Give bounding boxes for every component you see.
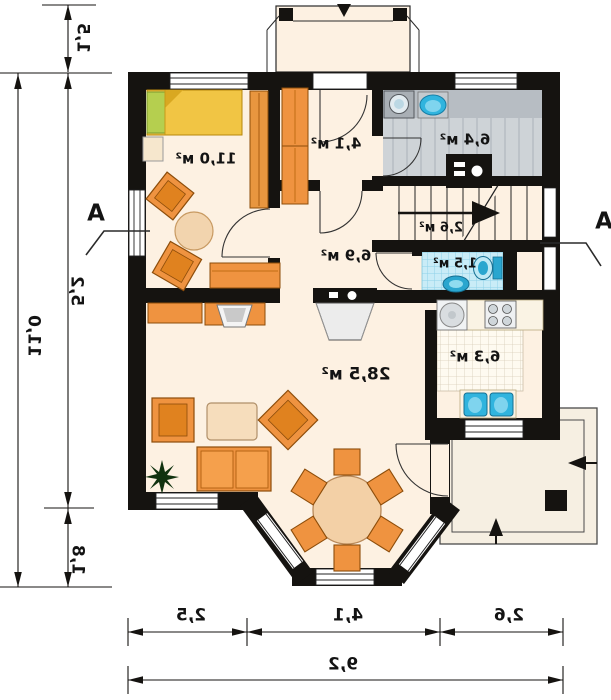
kitchen-bottom-window <box>465 420 523 438</box>
desk <box>210 263 280 288</box>
room-label-hall: 6,9 м² <box>321 249 372 264</box>
dim-porch-depth: 1,5 <box>74 23 91 53</box>
washing-machine <box>384 91 414 118</box>
porch-column-right <box>393 8 407 21</box>
kitchen-sink <box>460 390 516 418</box>
section-marker-right: A <box>595 211 611 234</box>
tv-stand <box>148 303 265 327</box>
room-label-living-room: 28,5 м² <box>321 367 390 384</box>
dim-left-upper: 5,2 <box>68 276 85 306</box>
floor-plan-page: 11,0 м² 4,1 м² 6,4 м² 2,6 м² 1,5 м² 6,9 … <box>0 0 611 700</box>
fridge <box>437 300 467 330</box>
bedroom-table <box>175 212 213 250</box>
dim-bottom-total: 9,2 <box>328 657 358 674</box>
toilet <box>474 257 503 280</box>
dim-bottom-middle: 4,1 <box>333 608 363 625</box>
bedroom-top-window <box>170 73 248 89</box>
room-label-wc: 1,5 м² <box>433 258 477 271</box>
dim-bottom-left: 2,5 <box>176 608 206 625</box>
sofa <box>197 447 271 491</box>
porch-column-left <box>279 8 293 21</box>
room-label-stairs: 2,6 м² <box>419 222 463 235</box>
furnace <box>446 154 492 188</box>
room-label-kitchen: 6,3 м² <box>450 350 501 365</box>
dim-bottom-right: 2,6 <box>494 608 524 625</box>
stove <box>485 301 516 328</box>
bedroom-wardrobe <box>250 91 268 208</box>
room-label-bedroom: 11,0 м² <box>175 152 236 167</box>
bed <box>147 90 242 135</box>
living-left-window <box>156 493 218 509</box>
hall-wardrobe <box>282 88 308 204</box>
entry-porch <box>267 4 419 72</box>
duct-shaft-upper <box>544 188 556 237</box>
bathroom-sink <box>418 92 448 118</box>
nightstand <box>143 137 163 161</box>
bedroom-left-window <box>129 190 145 256</box>
terrace-column <box>545 490 567 511</box>
duct-shaft-lower <box>544 247 556 290</box>
section-marker-left: A <box>87 203 105 226</box>
plant <box>145 460 179 494</box>
wc-sink <box>443 276 469 292</box>
floor-plan-drawing <box>0 0 611 700</box>
coffee-table <box>207 403 257 440</box>
dim-left-lower: 1,8 <box>69 545 86 575</box>
room-label-bathroom: 6,4 м² <box>440 133 491 148</box>
bathroom-top-window <box>455 73 517 89</box>
armchair <box>152 398 194 442</box>
room-label-entry-hall: 4,1 м² <box>311 137 362 152</box>
dim-left-total: 11,0 <box>25 315 42 357</box>
